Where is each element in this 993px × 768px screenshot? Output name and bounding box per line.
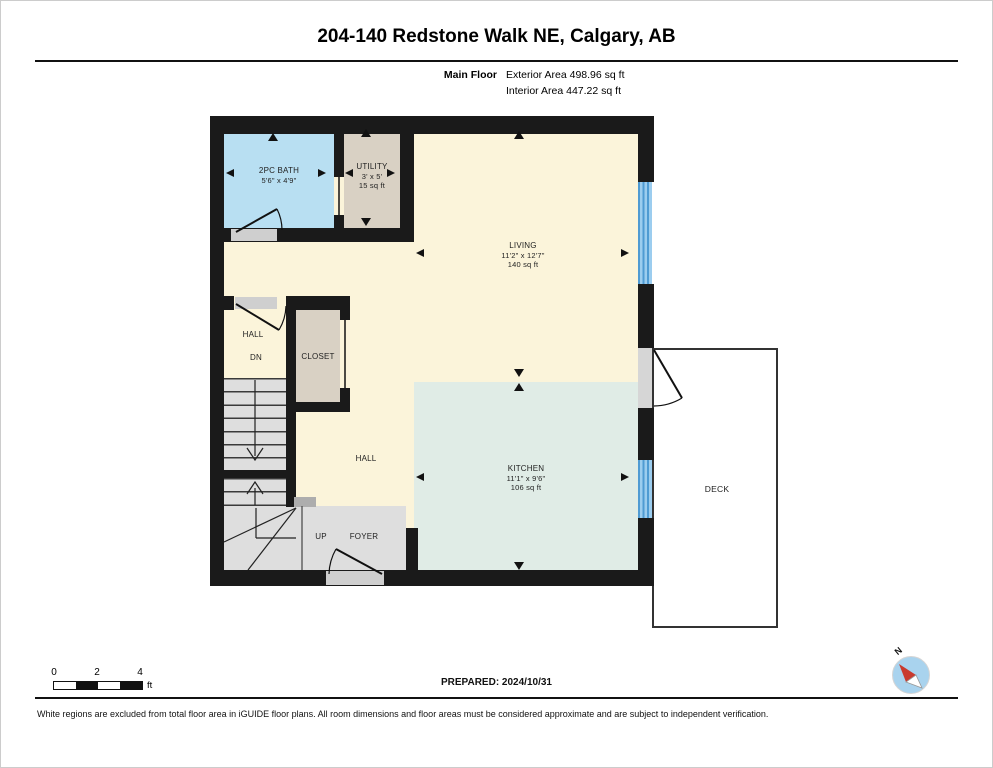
entry-door-threshold [326,571,384,585]
wall-utility-right [400,116,414,242]
room-area: 15 sq ft [356,181,387,190]
stairs-landing-step [294,497,316,507]
hall-door-threshold [235,297,277,309]
room-name: KITCHEN [507,464,546,474]
room-label-hall-lower: HALL [356,454,377,464]
wall-right-2 [638,284,654,348]
arrow-left-icon [416,473,424,481]
room-name: LIVING [501,241,544,251]
disclaimer-text: White regions are excluded from total fl… [37,709,768,719]
arrow-up-icon [514,131,524,139]
room-dims: 5'6" x 4'9" [259,176,299,185]
wall-right-1 [638,116,654,182]
arrow-right-icon [318,169,326,177]
arrow-up-icon [268,133,278,141]
living-window [638,182,652,284]
room-label-kitchen: KITCHEN 11'1" x 9'6" 106 sq ft [507,464,546,492]
arrow-down-icon [514,369,524,377]
room-dims: 11'1" x 9'6" [507,474,546,483]
wall-bottom [210,570,652,586]
room-label-utility: UTILITY 3' x 5' 15 sq ft [356,162,387,190]
wall-foyer-kitchen-spur [406,528,418,578]
room-dims: 11'2" x 12'7" [501,251,544,260]
wall-closet-right-1 [340,296,350,320]
prepared-date: PREPARED: 2024/10/31 [0,677,993,688]
stairs-flight-down [224,378,286,470]
room-dims: 3' x 5' [356,172,387,181]
stairs-down-label: DN [250,353,262,363]
compass-rose-icon [892,656,930,694]
bath-door-threshold [231,229,277,241]
deck-door-threshold [638,348,652,408]
room-name: 2PC BATH [259,166,299,176]
arrow-left-icon [226,169,234,177]
room-name: UTILITY [356,162,387,172]
stairs-winders [224,506,302,570]
arrow-down-icon [361,218,371,226]
stairs-up-label: UP [315,532,327,542]
room-area: 106 sq ft [507,483,546,492]
room-label-living: LIVING 11'2" x 12'7" 140 sq ft [501,241,544,269]
room-label-deck: DECK [705,484,729,494]
wall-right-3 [638,408,654,460]
room-area: 140 sq ft [501,260,544,269]
footer-divider [35,697,958,699]
kitchen-window [638,460,652,518]
arrow-up-icon [514,383,524,391]
floor-plan: 2PC BATH 5'6" x 4'9" UTILITY 3' x 5' 15 … [0,0,993,768]
wall-hall-top-stub [210,296,234,310]
room-label-hall-upper: HALL [243,330,264,340]
wall-closet-bottom [286,402,350,412]
arrow-left-icon [345,169,353,177]
arrow-down-icon [514,562,524,570]
room-label-foyer: FOYER [350,532,379,542]
wall-stairs-separator [224,470,286,478]
arrow-right-icon [621,473,629,481]
room-label-bath: 2PC BATH 5'6" x 4'9" [259,166,299,185]
arrow-right-icon [387,169,395,177]
wall-left [210,116,224,586]
arrow-left-icon [416,249,424,257]
floorplan-page: 204-140 Redstone Walk NE, Calgary, AB Ma… [0,0,993,768]
wall-top [210,116,652,134]
wall-bath-utility-1 [334,134,344,177]
wall-right-4 [638,518,654,586]
stairs-flight-up [224,478,286,506]
arrow-up-icon [361,129,371,137]
room-label-closet: CLOSET [301,352,334,362]
arrow-right-icon [621,249,629,257]
